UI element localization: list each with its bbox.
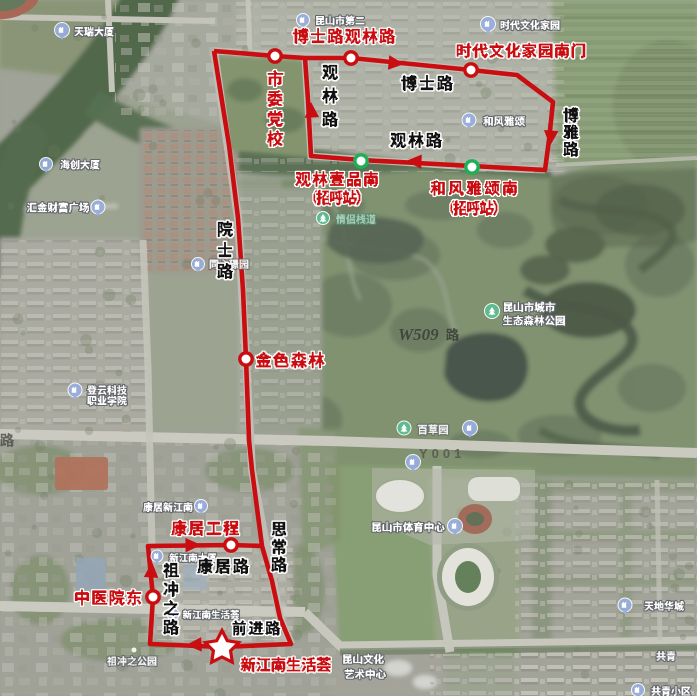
svg-text:W509: W509 — [398, 325, 439, 344]
svg-text:Y001: Y001 — [419, 446, 465, 461]
